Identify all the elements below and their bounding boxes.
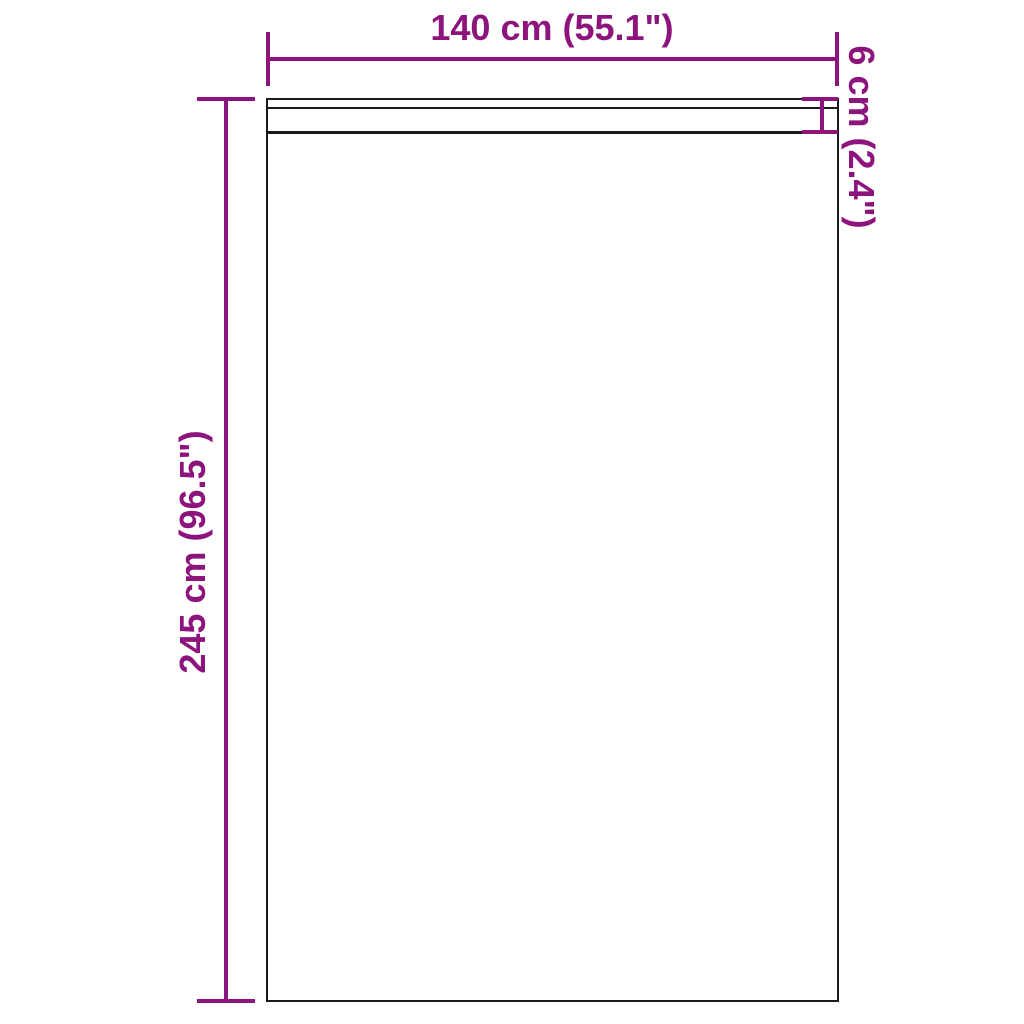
width-dimension-left-tick bbox=[266, 32, 270, 86]
height-dimension-top-tick bbox=[197, 97, 255, 101]
width-dimension-right-tick bbox=[835, 32, 839, 86]
header-band-dimension-label: 6 cm (2.4") bbox=[843, 45, 879, 228]
header-band-bottom-tick bbox=[802, 130, 838, 134]
header-band-top-tick bbox=[802, 97, 838, 101]
height-dimension-bottom-tick bbox=[197, 999, 255, 1003]
width-dimension-line bbox=[266, 57, 838, 61]
curtain-header-seam-line bbox=[268, 107, 837, 109]
header-band-dimension-line bbox=[820, 99, 824, 134]
curtain-header-band-bottom-line bbox=[268, 131, 837, 134]
dimension-diagram: 140 cm (55.1") 245 cm (96.5") 6 cm (2.4"… bbox=[0, 0, 1024, 1024]
height-dimension-line bbox=[224, 98, 228, 1002]
curtain-outline bbox=[266, 98, 839, 1002]
height-dimension-label: 245 cm (96.5") bbox=[175, 430, 211, 673]
width-dimension-label: 140 cm (55.1") bbox=[430, 10, 673, 46]
